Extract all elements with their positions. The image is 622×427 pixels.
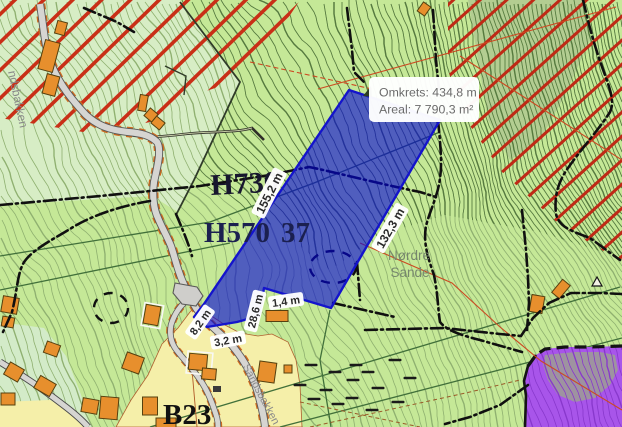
svg-text:H570: H570	[204, 217, 270, 249]
svg-text:Areal: 7 790,3 m²: Areal: 7 790,3 m²	[379, 103, 473, 117]
svg-text:Sande: Sande	[390, 265, 429, 280]
svg-text:B23: B23	[163, 399, 211, 427]
svg-text:Nørdre: Nørdre	[388, 248, 430, 263]
svg-text:Omkrets: 434,8 m: Omkrets: 434,8 m	[379, 86, 477, 100]
svg-text:37: 37	[281, 217, 310, 249]
